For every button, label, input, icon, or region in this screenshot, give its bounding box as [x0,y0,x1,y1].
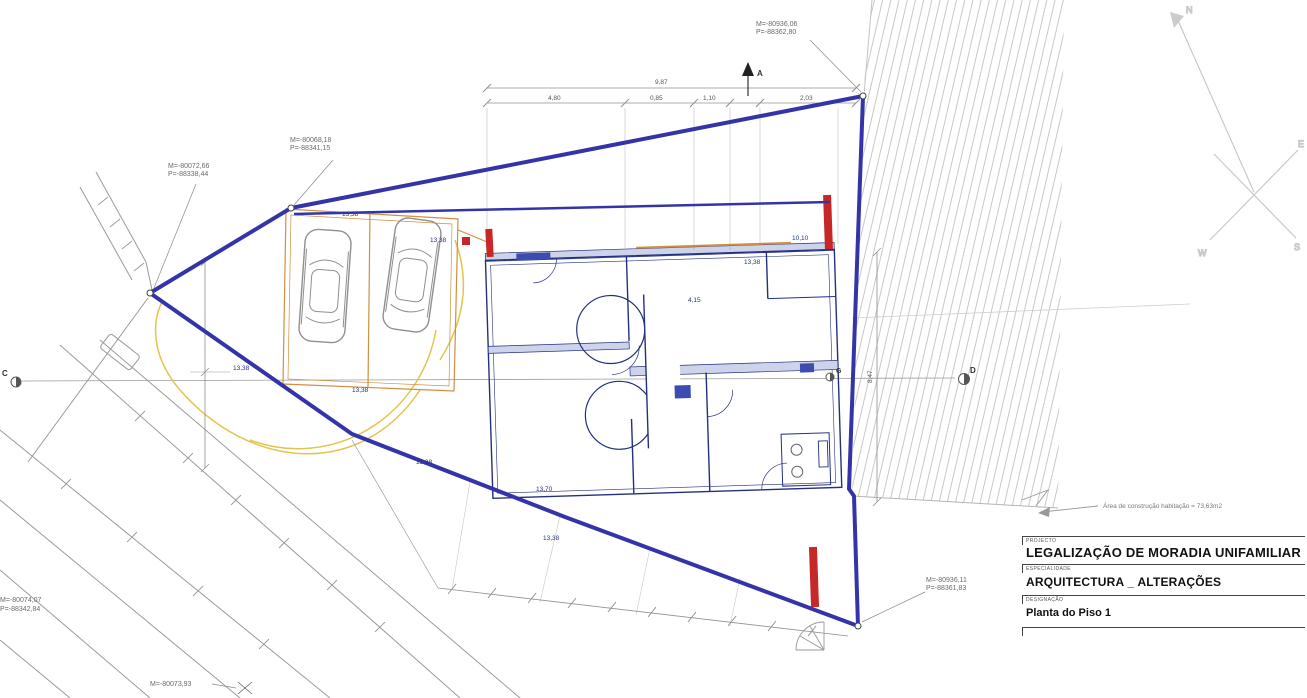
level-label: 13,38 [430,237,447,244]
dim-seg3: 1,10 [703,95,716,102]
level-label: 13,38 [233,365,250,372]
level-label: 13,38 [416,459,433,466]
title-block-rule [1022,564,1305,565]
compass-s: S [1294,242,1300,252]
level-label: 13,70 [536,486,553,493]
compass-n: N [1186,5,1193,15]
title-block-rule [1022,595,1305,596]
coordinate-labels: M=-80936,06 P=-88362,80 M=-80068,18 P=-8… [0,21,967,688]
parked-car-left [298,229,352,344]
title-block-rule [1022,536,1305,537]
coord-upper-mid-p: P=-88341,15 [290,145,330,152]
coord-upper-left-m: M=-80072,66 [168,163,210,170]
marker-a-label: A [757,69,763,78]
dim-seg1: 4,80 [548,95,561,102]
specialty-label: ESPECIALIDADE [1026,566,1305,572]
marker-d-label: D [970,366,976,375]
property-boundary [150,96,863,626]
area-note: Área de construção habitação = 73,63m2 [1103,501,1222,510]
project-label: PROJECTO [1026,538,1305,544]
dim-top-total: 9,87 [655,79,668,86]
project-title: LEGALIZAÇÃO DE MORADIA UNIFAMILIAR [1026,545,1305,560]
level-label: 13,38 [352,387,369,394]
coord-bottom-left-m: M=-80074,07 [0,597,42,604]
compass-e: E [1298,139,1304,149]
coord-upper-mid-m: M=-80068,18 [290,137,332,144]
drawing-name: Planta do Piso 1 [1026,607,1305,619]
parked-car-right [381,216,442,333]
compass-w: W [1198,248,1207,258]
level-label: 13,38 [342,211,359,218]
compass-icon: N E W S [1170,5,1304,258]
marker-g-label: G [836,368,842,375]
dimension-lines [190,84,881,636]
title-block: PROJECTO LEGALIZAÇÃO DE MORADIA UNIFAMIL… [1022,536,1305,628]
coord-bottom-right-p: P=-88361,83 [926,585,966,592]
drawing-label: DESIGNAÇÃO [1026,597,1305,603]
coord-top-right-p: P=-88362,80 [756,29,796,36]
level-label: 13,38 [543,535,560,542]
level-label: 13,38 [744,259,761,266]
survey-corner-points [147,93,866,629]
vehicle-path-arcs [156,240,464,454]
street-lines [0,172,520,698]
dim-right-side: 8,47 [867,370,874,383]
coord-bottom-left-p: P=-88342,84 [0,606,40,613]
dim-seg4: 2,03 [800,95,813,102]
house-plan [485,241,842,498]
dim-seg2: 0,85 [650,95,663,102]
hatched-neighbour-area [852,0,1190,508]
title-block-rule [1022,627,1305,628]
marker-c-label: C [2,369,8,378]
gate-swing-symbol [796,622,824,650]
level-label: 10,10 [792,235,809,242]
coord-top-right-m: M=-80936,06 [756,21,798,28]
floor-plan-sheet: A C D G N E W [0,0,1307,698]
specialty-title: ARQUITECTURA _ ALTERAÇÕES [1026,575,1305,589]
coord-bottom-mid-m: M=-80073,93 [150,681,192,688]
level-label: 4,15 [688,297,701,304]
coord-bottom-right-m: M=-80936,11 [926,577,967,584]
coord-upper-left-p: P=-88338,44 [168,171,208,178]
